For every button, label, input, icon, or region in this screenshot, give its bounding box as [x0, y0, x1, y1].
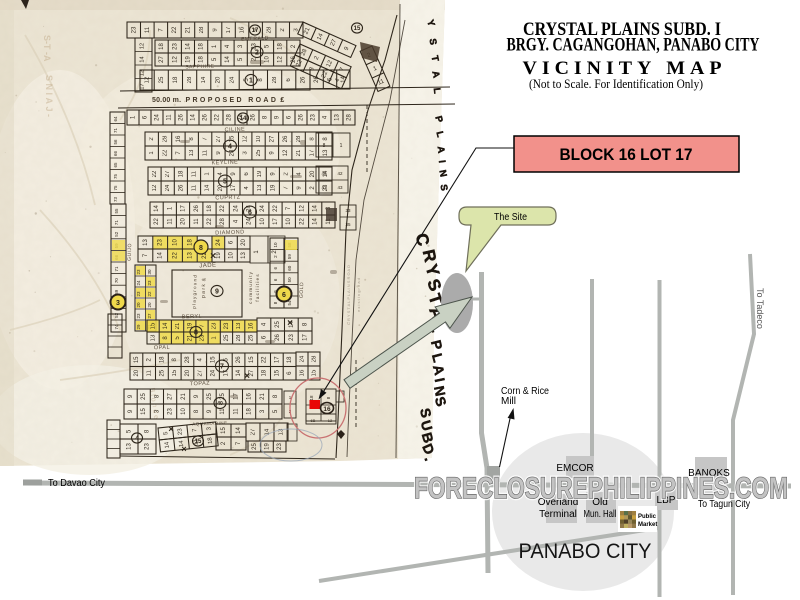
svg-text:×: × — [244, 371, 250, 382]
svg-text:KEYLINE: KEYLINE — [212, 160, 239, 167]
svg-text:24: 24 — [136, 280, 141, 286]
svg-text:30: 30 — [147, 269, 152, 275]
svg-text:17: 17 — [181, 205, 187, 212]
svg-text:40: 40 — [321, 171, 327, 176]
svg-text:27: 27 — [165, 170, 171, 177]
svg-text:22: 22 — [207, 218, 213, 225]
svg-text:14: 14 — [164, 441, 171, 449]
svg-text:22: 22 — [147, 291, 152, 297]
svg-text:Public: Public — [638, 514, 657, 520]
svg-text:24: 24 — [216, 239, 222, 246]
svg-text:c o m m u n i t y: c o m m u n i t y — [248, 271, 253, 304]
svg-text:25: 25 — [159, 369, 165, 376]
svg-text:24: 24 — [260, 205, 266, 212]
svg-text:12: 12 — [172, 56, 178, 63]
svg-text:18: 18 — [262, 369, 268, 376]
svg-text:18: 18 — [199, 43, 205, 50]
svg-text:20: 20 — [147, 302, 152, 308]
svg-text:14: 14 — [240, 116, 247, 122]
svg-text:14: 14 — [191, 114, 197, 121]
svg-text:71: 71 — [113, 128, 118, 134]
svg-text:25: 25 — [248, 334, 254, 341]
svg-text:22: 22 — [273, 205, 279, 212]
svg-text:14: 14 — [225, 56, 231, 63]
svg-text:42: 42 — [337, 171, 343, 176]
svg-text:26: 26 — [251, 114, 257, 121]
svg-text:19: 19 — [257, 170, 263, 177]
svg-text:22: 22 — [163, 149, 169, 156]
svg-text:28: 28 — [267, 26, 273, 33]
svg-text:20: 20 — [136, 302, 141, 308]
svg-text:13: 13 — [127, 443, 133, 450]
svg-text:14: 14 — [341, 76, 347, 83]
svg-text:26: 26 — [236, 356, 242, 363]
svg-text:17: 17 — [303, 334, 309, 341]
svg-text:15: 15 — [312, 369, 318, 376]
svg-text:5: 5 — [223, 179, 227, 186]
svg-text:35: 35 — [345, 222, 351, 227]
svg-text:23: 23 — [158, 239, 164, 246]
svg-text:14: 14 — [140, 56, 146, 62]
svg-text:15: 15 — [249, 356, 255, 363]
svg-text:15: 15 — [221, 427, 227, 434]
svg-text:24: 24 — [165, 184, 171, 191]
svg-text:28: 28 — [163, 135, 169, 142]
svg-text:12: 12 — [145, 76, 151, 83]
svg-text:27: 27 — [168, 393, 174, 400]
svg-text:18: 18 — [278, 43, 284, 50]
svg-text:11: 11 — [203, 149, 209, 156]
svg-text:19: 19 — [186, 56, 192, 63]
svg-text:TOPAZ: TOPAZ — [190, 381, 211, 388]
svg-text:22: 22 — [173, 252, 179, 259]
svg-text:14: 14 — [236, 369, 242, 376]
svg-text:28: 28 — [185, 356, 191, 363]
svg-text:25: 25 — [159, 76, 165, 83]
svg-text:6B: 6B — [311, 418, 316, 423]
svg-text:26: 26 — [203, 114, 209, 121]
svg-text:V I C I N I T Y M A P: V I C I N I T Y M A P — [523, 58, 722, 79]
svg-text:17: 17 — [310, 149, 316, 156]
svg-text:15: 15 — [354, 26, 361, 32]
svg-text:22: 22 — [152, 170, 158, 177]
svg-text:18: 18 — [173, 76, 179, 83]
svg-text:28: 28 — [347, 114, 353, 121]
svg-text:23: 23 — [131, 26, 137, 33]
svg-text:33: 33 — [345, 208, 351, 213]
svg-text:13: 13 — [323, 149, 329, 156]
svg-text:23: 23 — [172, 43, 178, 50]
svg-text:25: 25 — [252, 443, 258, 450]
svg-text:15: 15 — [274, 369, 280, 376]
svg-text:To Tadeco: To Tadeco — [755, 288, 765, 329]
svg-text:11: 11 — [145, 26, 151, 33]
svg-text:12: 12 — [328, 418, 333, 423]
svg-text:12: 12 — [243, 135, 249, 142]
svg-text:27: 27 — [147, 313, 152, 319]
svg-text:20: 20 — [310, 170, 316, 177]
svg-text:23: 23 — [311, 114, 317, 121]
svg-text:22: 22 — [262, 356, 268, 363]
svg-text:20: 20 — [181, 218, 187, 225]
svg-text:21: 21 — [296, 149, 302, 156]
svg-text:23: 23 — [136, 269, 141, 275]
svg-text:Market: Market — [638, 522, 657, 528]
svg-text:24: 24 — [211, 369, 217, 376]
svg-text:50: 50 — [287, 277, 292, 283]
svg-text:13: 13 — [189, 149, 195, 156]
svg-text:19: 19 — [216, 252, 222, 259]
svg-text:15: 15 — [134, 356, 140, 363]
svg-text:59: 59 — [287, 254, 292, 260]
svg-text:24: 24 — [230, 76, 236, 83]
svg-text:50.00 m. P R O P O S E D R: 50.00 m. P R O P O S E D R O A D ₤ — [152, 97, 284, 104]
svg-text:75: 75 — [113, 185, 118, 191]
svg-text:52: 52 — [114, 312, 119, 318]
svg-text:28: 28 — [236, 334, 242, 341]
svg-text:20: 20 — [241, 239, 247, 246]
svg-text:15: 15 — [141, 408, 147, 415]
svg-text:41: 41 — [321, 185, 327, 190]
svg-text:14: 14 — [163, 322, 169, 329]
svg-text:13: 13 — [335, 114, 341, 121]
svg-text:To Davao City: To Davao City — [48, 478, 105, 489]
svg-text:6: 6 — [282, 292, 286, 299]
svg-text:BRGY. CAGANGOHAN, PANABO CITY: BRGY. CAGANGOHAN, PANABO CITY — [507, 35, 760, 56]
svg-text:9: 9 — [215, 289, 219, 296]
svg-text:8: 8 — [199, 245, 203, 252]
svg-text:14: 14 — [186, 43, 192, 50]
svg-text:×: × — [210, 251, 216, 262]
svg-text:26: 26 — [300, 76, 306, 83]
svg-text:26: 26 — [179, 114, 185, 121]
svg-text:16: 16 — [240, 26, 246, 33]
svg-text:26: 26 — [178, 184, 184, 191]
svg-text:73: 73 — [113, 197, 118, 203]
svg-text:16: 16 — [247, 393, 253, 400]
svg-text:60: 60 — [287, 265, 292, 271]
svg-text:27: 27 — [269, 135, 275, 142]
svg-text:20: 20 — [215, 76, 221, 83]
svg-text:27: 27 — [198, 369, 204, 376]
svg-text:65: 65 — [113, 162, 118, 168]
svg-text:14: 14 — [313, 205, 319, 212]
svg-text:14: 14 — [158, 252, 164, 259]
svg-text:55: 55 — [114, 208, 119, 214]
svg-text:18: 18 — [187, 239, 193, 246]
svg-text:12: 12 — [283, 149, 289, 156]
svg-text:26: 26 — [283, 135, 289, 142]
svg-text:e x i s t i n g r o a d: e x i s t i n g r o a d — [356, 278, 361, 312]
svg-text:28: 28 — [187, 76, 193, 83]
svg-text:×: × — [287, 318, 293, 329]
svg-text:18: 18 — [287, 356, 293, 363]
svg-text:25: 25 — [275, 321, 281, 328]
svg-text:17: 17 — [226, 26, 232, 33]
svg-text:16: 16 — [248, 322, 254, 329]
svg-text:13: 13 — [241, 252, 247, 259]
svg-text:1: 1 — [249, 78, 253, 85]
svg-text:15: 15 — [195, 439, 202, 445]
svg-text:14: 14 — [313, 218, 319, 225]
svg-text:64: 64 — [113, 116, 118, 122]
svg-text:25: 25 — [141, 393, 147, 400]
svg-text:28: 28 — [220, 218, 226, 225]
svg-text:4: 4 — [228, 144, 232, 151]
svg-text:11: 11 — [233, 408, 239, 415]
svg-text:Terminal: Terminal — [539, 509, 577, 520]
svg-text:17: 17 — [252, 28, 259, 34]
svg-text:The Site: The Site — [494, 211, 527, 223]
svg-text:10: 10 — [229, 252, 235, 259]
svg-text:23: 23 — [147, 280, 152, 286]
svg-text:12: 12 — [278, 56, 284, 63]
svg-text:22: 22 — [300, 218, 306, 225]
svg-text:52: 52 — [114, 231, 119, 237]
svg-text:24: 24 — [247, 218, 253, 225]
svg-text:14: 14 — [205, 184, 211, 191]
svg-text:23: 23 — [224, 322, 230, 329]
svg-text:21: 21 — [260, 393, 266, 400]
svg-text:BLOCK 16 LOT 17: BLOCK 16 LOT 17 — [560, 146, 693, 164]
svg-text:A: A — [435, 146, 447, 154]
svg-text:17: 17 — [274, 356, 280, 363]
svg-text:3: 3 — [116, 300, 120, 307]
svg-text:11: 11 — [147, 369, 153, 376]
svg-text:22: 22 — [172, 26, 178, 33]
svg-text:13: 13 — [143, 239, 149, 246]
svg-text:16: 16 — [323, 406, 331, 413]
svg-text:23: 23 — [289, 334, 295, 341]
svg-text:10: 10 — [256, 135, 262, 142]
svg-text:13: 13 — [236, 322, 242, 329]
svg-text:22: 22 — [220, 205, 226, 212]
svg-text:11: 11 — [194, 218, 200, 225]
svg-text:Mill: Mill — [501, 396, 516, 407]
svg-text:10: 10 — [173, 239, 179, 246]
svg-text:15: 15 — [172, 369, 178, 376]
svg-text:28: 28 — [272, 76, 278, 83]
svg-text:21: 21 — [175, 322, 181, 329]
svg-text:8: 8 — [194, 330, 198, 337]
svg-text:23: 23 — [212, 322, 218, 329]
svg-text:10: 10 — [273, 242, 278, 248]
svg-text:SAPPHIRE: SAPPHIRE — [185, 63, 215, 70]
svg-text:FORECLOSUREPHILIPPINES.COM: FORECLOSUREPHILIPPINES.COM — [414, 472, 788, 505]
svg-text:56: 56 — [113, 139, 118, 145]
svg-text:18: 18 — [159, 43, 165, 50]
svg-text:17: 17 — [231, 184, 237, 191]
svg-text:11: 11 — [167, 114, 173, 121]
svg-text:23: 23 — [136, 291, 141, 297]
svg-text:7: 7 — [220, 364, 224, 371]
svg-text:12: 12 — [300, 205, 306, 212]
svg-text:13: 13 — [151, 334, 157, 341]
svg-text:×: × — [168, 424, 173, 434]
svg-text:71: 71 — [114, 266, 119, 272]
svg-text:21: 21 — [181, 393, 187, 400]
svg-text:(Not to Scale. For Identifica: (Not to Scale. For Identification Only) — [529, 77, 703, 91]
svg-text:JADE: JADE — [199, 263, 217, 270]
svg-text:29: 29 — [136, 324, 141, 330]
svg-text:26: 26 — [299, 114, 305, 121]
svg-text:22: 22 — [154, 218, 160, 225]
svg-text:14: 14 — [201, 76, 207, 83]
svg-text:27: 27 — [216, 135, 222, 142]
svg-text:10: 10 — [181, 408, 187, 415]
svg-text:24: 24 — [233, 205, 239, 212]
svg-text:25: 25 — [224, 334, 230, 341]
svg-text:13: 13 — [257, 184, 263, 191]
svg-text:OPAL: OPAL — [154, 345, 170, 352]
svg-text:18: 18 — [178, 170, 184, 177]
svg-text:GUIJO: GUIJO — [127, 243, 134, 261]
svg-text:18: 18 — [207, 205, 213, 212]
svg-text:15: 15 — [151, 322, 157, 329]
svg-text:p a r k &: p a r k & — [201, 277, 208, 298]
svg-text:C R Y S T A L P L A I N S R: C R Y S T A L P L A I N S R O A D — [346, 265, 351, 325]
svg-text:66: 66 — [113, 151, 118, 157]
svg-text:23: 23 — [136, 313, 141, 319]
svg-text:24: 24 — [300, 355, 306, 362]
svg-text:CUPRTZ: CUPRTZ — [215, 195, 241, 202]
svg-text:21: 21 — [185, 26, 191, 33]
svg-text:20: 20 — [134, 369, 140, 376]
svg-text:11: 11 — [192, 184, 198, 191]
svg-text:26: 26 — [194, 205, 200, 212]
svg-text:22: 22 — [215, 114, 221, 121]
svg-text:25: 25 — [207, 393, 213, 400]
svg-text:28: 28 — [312, 355, 318, 362]
svg-text:21: 21 — [187, 334, 193, 341]
svg-text:23: 23 — [177, 427, 184, 435]
svg-text:75: 75 — [113, 174, 118, 180]
svg-text:GOLD: GOLD — [299, 282, 306, 298]
svg-text:DIAMOND: DIAMOND — [215, 229, 245, 236]
svg-text:17: 17 — [273, 218, 279, 225]
svg-text:27: 27 — [159, 56, 165, 63]
svg-text:1: 1 — [340, 143, 343, 149]
svg-text:2: 2 — [255, 50, 259, 57]
svg-text:18: 18 — [309, 395, 314, 401]
svg-text:26: 26 — [275, 334, 281, 341]
svg-text:23: 23 — [168, 408, 174, 415]
svg-text:11: 11 — [167, 218, 173, 225]
svg-text:28: 28 — [199, 26, 205, 33]
svg-text:40: 40 — [217, 401, 223, 407]
svg-text:18: 18 — [247, 408, 253, 415]
svg-text:18: 18 — [159, 356, 165, 363]
svg-text:6: 6 — [248, 210, 252, 217]
svg-text:13: 13 — [187, 252, 193, 259]
svg-text:Mun. Hall: Mun. Hall — [584, 509, 617, 520]
svg-text:71: 71 — [114, 220, 119, 226]
svg-text:10: 10 — [265, 56, 271, 63]
svg-text:18: 18 — [199, 56, 205, 63]
svg-text:70: 70 — [114, 278, 119, 284]
svg-text:14: 14 — [236, 427, 242, 434]
svg-text:14: 14 — [154, 205, 160, 212]
svg-text:S: S — [427, 38, 439, 46]
svg-text:×: × — [181, 444, 186, 454]
svg-text:24: 24 — [155, 114, 161, 121]
svg-text:12: 12 — [140, 43, 146, 49]
svg-text:19: 19 — [270, 184, 276, 191]
svg-text:43: 43 — [337, 185, 343, 190]
svg-text:PANABO CITY: PANABO CITY — [519, 540, 652, 563]
svg-text:19: 19 — [265, 443, 271, 450]
svg-text:10: 10 — [260, 218, 266, 225]
svg-text:11: 11 — [192, 170, 198, 177]
svg-text:23: 23 — [277, 443, 283, 450]
svg-text:15: 15 — [211, 356, 217, 363]
svg-text:27: 27 — [251, 428, 257, 435]
svg-text:BERYL: BERYL — [182, 314, 203, 321]
svg-text:20: 20 — [185, 369, 191, 376]
svg-text:16: 16 — [300, 369, 306, 376]
svg-text:10: 10 — [286, 218, 292, 225]
svg-text:26: 26 — [314, 76, 320, 83]
svg-text:f a c i l i t i e s: f a c i l i t i e s — [255, 274, 260, 302]
svg-text:12: 12 — [152, 184, 158, 191]
svg-text:18: 18 — [207, 436, 214, 444]
svg-text:25: 25 — [256, 149, 262, 156]
svg-text:28: 28 — [227, 114, 233, 121]
svg-text:8: 8 — [323, 143, 326, 149]
svg-text:23: 23 — [145, 443, 151, 450]
